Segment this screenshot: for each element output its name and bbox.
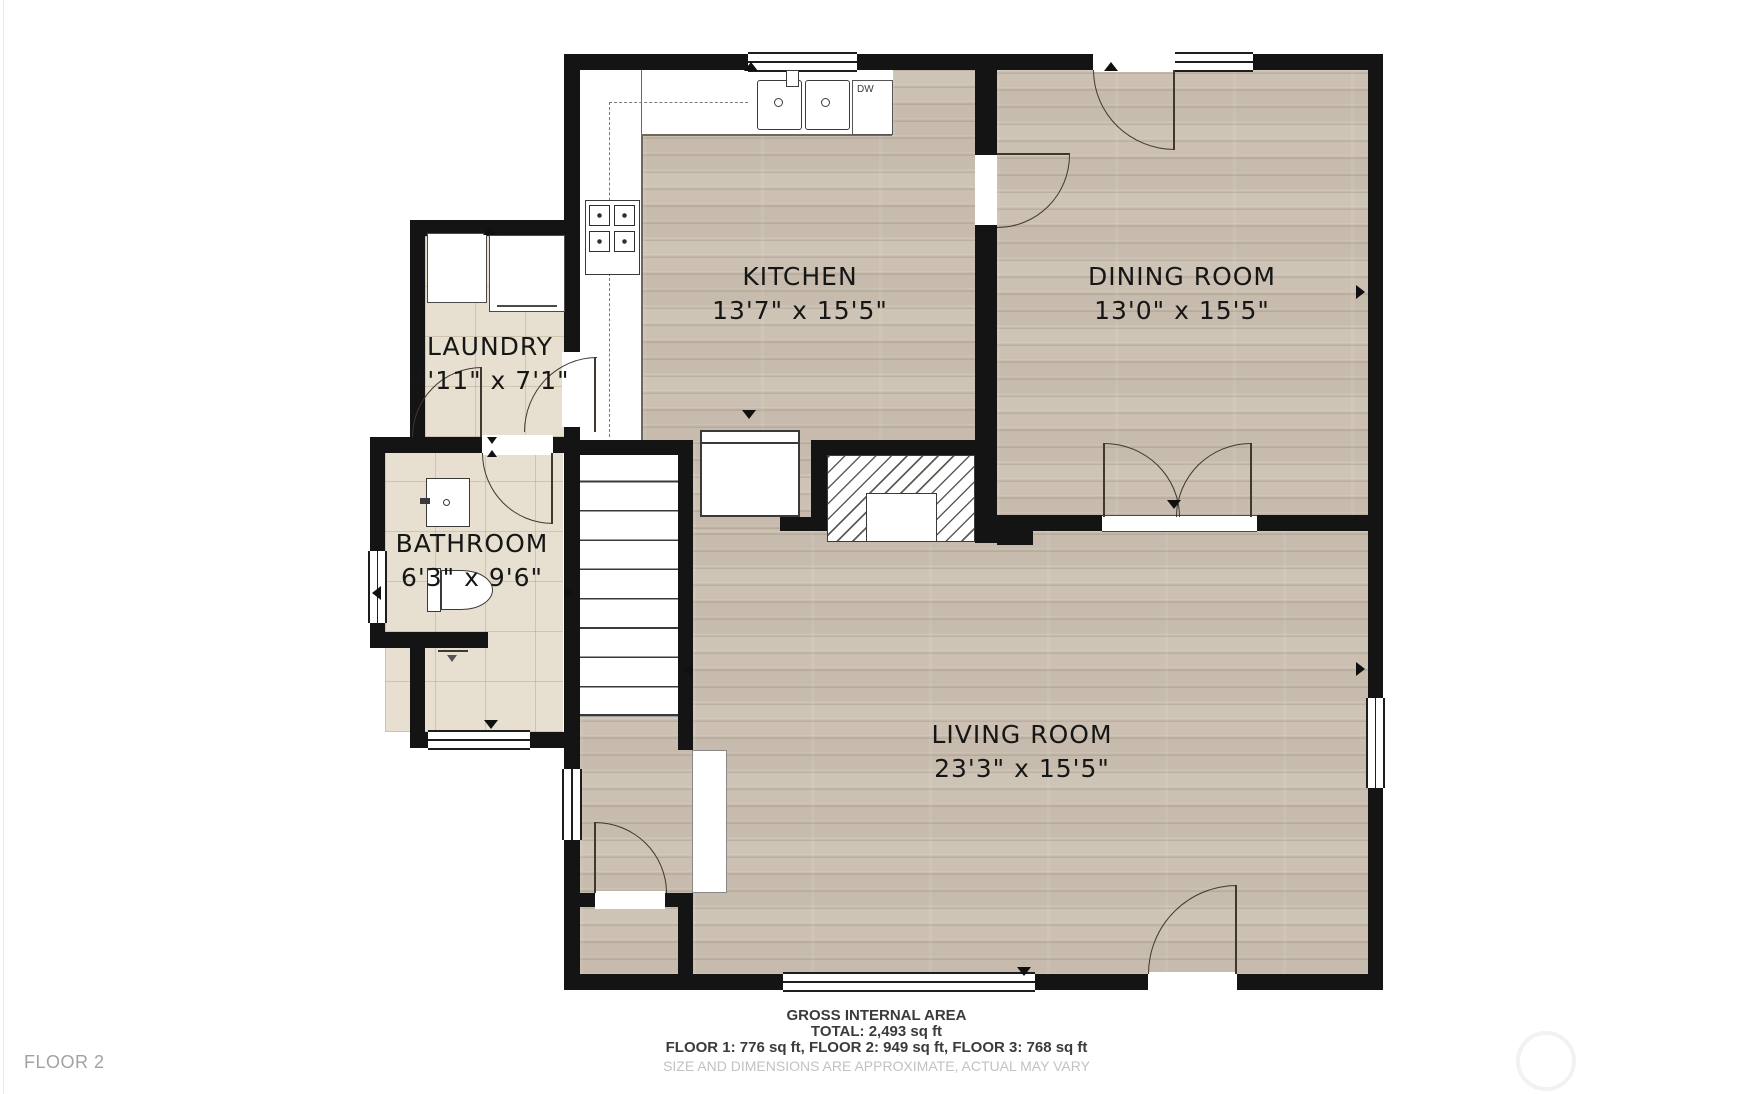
dryer-door-line [497,305,557,307]
doorway-kitchen-dining [975,155,997,225]
laundry-label: LAUNDRY 4'11" x 7'1" [330,330,650,398]
door-leaf-front-entry [1235,885,1237,974]
wall-bath-stub [370,632,488,648]
marker-arrow-icon [1104,62,1118,71]
watermark-logo [1516,1031,1576,1091]
wall-laundry-bath-a [370,437,482,453]
doorway-french [1102,515,1257,532]
dining-name: DINING ROOM [1022,260,1342,294]
wall-dining-living-right [1257,515,1368,531]
floor-number-label: FLOOR 2 [24,1052,105,1073]
floor-areas: FLOOR 1: 776 sq ft, FLOOR 2: 949 sq ft, … [0,1040,1753,1056]
wall-vestibule-top-a [564,893,595,907]
window-living-bottom [783,972,1035,992]
marker-arrow-icon [1356,285,1365,299]
wall-vestibule-right [678,893,693,990]
wall-bottom-mid [1035,974,1148,990]
window-frame-line [428,739,530,741]
floorplan-page: DW KITCHEN 13'7" x 15'5" [0,0,1753,1094]
footer: GROSS INTERNAL AREA TOTAL: 2,493 sq ft F… [0,1008,1753,1074]
wall-stairs-top [564,440,693,455]
stove-burner [589,231,610,252]
dishwasher-label: DW [857,84,874,95]
marker-arrow-icon [684,663,693,677]
marker-arrow-icon [487,450,497,457]
bathroom-name: BATHROOM [312,527,632,561]
wall-right-lower [1368,788,1383,990]
window-frame-line [1175,61,1253,63]
kitchen-name: KITCHEN [640,260,960,294]
dining-label: DINING ROOM 13'0" x 15'5" [1022,260,1342,328]
laundry-dims: 4'11" x 7'1" [330,364,650,398]
shower-head-icon [447,655,457,662]
window-dining-top [1175,52,1253,72]
disclaimer: SIZE AND DIMENSIONS ARE APPROXIMATE, ACT… [0,1058,1753,1074]
wall-right-upper [1368,54,1383,698]
door-leaf-dining-entry [1173,70,1175,150]
living-dims: 23'3" x 15'5" [862,752,1182,786]
wall-kitchen-dining-b [975,225,997,543]
marker-arrow-icon [1356,662,1365,676]
door-leaf-vestibule [594,822,596,893]
wall-top-mid [857,54,1093,70]
marker-arrow-icon [742,410,756,419]
page-edge-line [3,0,4,1094]
marker-arrow-icon [484,720,498,729]
wall-top-left [564,54,748,70]
stove-burner [614,205,635,226]
kitchen-dims: 13'7" x 15'5" [640,294,960,328]
door-leaf-bathroom [551,453,553,524]
window-frame-line [571,769,573,840]
sink-drain-right [821,98,830,107]
wall-dining-south-step [997,530,1033,545]
shower-bar-icon [438,650,468,652]
window-frame-line [783,981,1035,983]
marker-arrow-icon [744,62,758,71]
dryer [489,235,565,312]
stove-burner [589,205,610,226]
total-area: TOTAL: 2,493 sq ft [0,1024,1753,1040]
sink-drain-left [774,98,783,107]
staircase-bottom-edge [580,714,678,716]
wall-bath-left-b [370,623,385,632]
washer [427,233,487,303]
marker-arrow-icon [1017,967,1031,976]
wall-bath-bottom-b [530,732,580,748]
wall-fireplace-top [811,440,977,455]
wall-stairs-right [678,453,693,750]
french-door-leaf-left [1103,443,1105,517]
doorway-vestibule [595,891,665,909]
wall-dining-south [997,515,1102,531]
stove-burner [614,231,635,252]
window-bathroom-bottom [428,730,530,750]
marker-arrow-icon [487,437,497,444]
wall-bottom-left [564,974,783,990]
laundry-name: LAUNDRY [330,330,650,364]
sink-faucet-icon [786,70,799,87]
french-door-leaf-right [1250,443,1252,517]
fireplace-firebox [866,493,937,542]
wall-left-upper [564,54,580,352]
kitchen-label: KITCHEN 13'7" x 15'5" [640,260,960,328]
window-kitchen-top [748,52,857,72]
hall-closet-shelf-line [702,442,798,444]
living-closet-strip [692,750,727,893]
vanity-tap-icon [420,498,430,504]
dining-dims: 13'0" x 15'5" [1022,294,1342,328]
marker-arrow-icon [1167,500,1181,509]
wall-top-right [1253,54,1383,70]
gross-internal-area-title: GROSS INTERNAL AREA [0,1008,1753,1024]
wall-bath-bottom-a [410,732,428,748]
bathroom-dims: 6'3" x 9'6" [312,561,632,595]
window-living-left [562,769,582,840]
window-living-right [1366,698,1385,788]
doorway-entry [1148,972,1237,992]
wall-bottom-right [1237,974,1383,990]
wall-fireplace-step [780,517,827,531]
door-leaf-kitchen-dining [997,153,1070,155]
vanity-drain [443,499,450,506]
living-name: LIVING ROOM [862,718,1182,752]
wall-kitchen-dining-a [975,70,997,155]
marker-arrow-icon [483,226,497,235]
living-label: LIVING ROOM 23'3" x 15'5" [862,718,1182,786]
counter-dashed-edge-h [609,102,748,103]
wall-bath-lower-left [410,632,425,748]
wall-left-lower [564,840,580,990]
window-frame-line [748,61,857,63]
bathroom-label: BATHROOM 6'3" x 9'6" [312,527,632,595]
kitchen-floor-upper [892,70,975,136]
window-frame-line [1375,698,1377,788]
